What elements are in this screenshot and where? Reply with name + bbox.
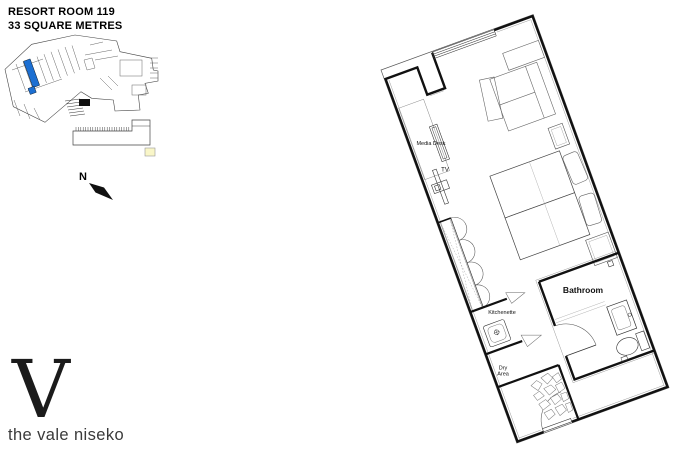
page: RESORT ROOM 119 33 SQUARE METRES N Media…: [0, 0, 678, 458]
north-label: N: [79, 171, 87, 183]
room-size: 33 SQUARE METRES: [8, 19, 122, 33]
page-title: RESORT ROOM 119 33 SQUARE METRES: [8, 5, 122, 33]
room-title: RESORT ROOM 119: [8, 5, 122, 19]
key-map-annex-comb: [76, 127, 129, 131]
north-arrow-icon: [89, 183, 113, 200]
key-map-outline: [5, 35, 158, 122]
key-map-legend-square: [145, 148, 155, 156]
bathroom-label: Bathroom: [563, 286, 603, 296]
logo-monogram: V: [12, 352, 124, 428]
key-map-elevator: [79, 99, 90, 106]
dry-area-label: Dry Area: [497, 366, 509, 379]
floor-plan: [381, 15, 669, 443]
logo-wordmark: the vale niseko: [8, 426, 124, 445]
media-desk-label: Media Desk: [416, 141, 445, 147]
key-map-annex: [73, 120, 150, 145]
logo: V the vale niseko: [8, 352, 124, 445]
key-map: [5, 35, 158, 156]
tv-label: TV: [441, 168, 449, 175]
key-map-highlight-room: [24, 59, 40, 95]
kitchenette-label: Kitchenette: [488, 310, 516, 316]
